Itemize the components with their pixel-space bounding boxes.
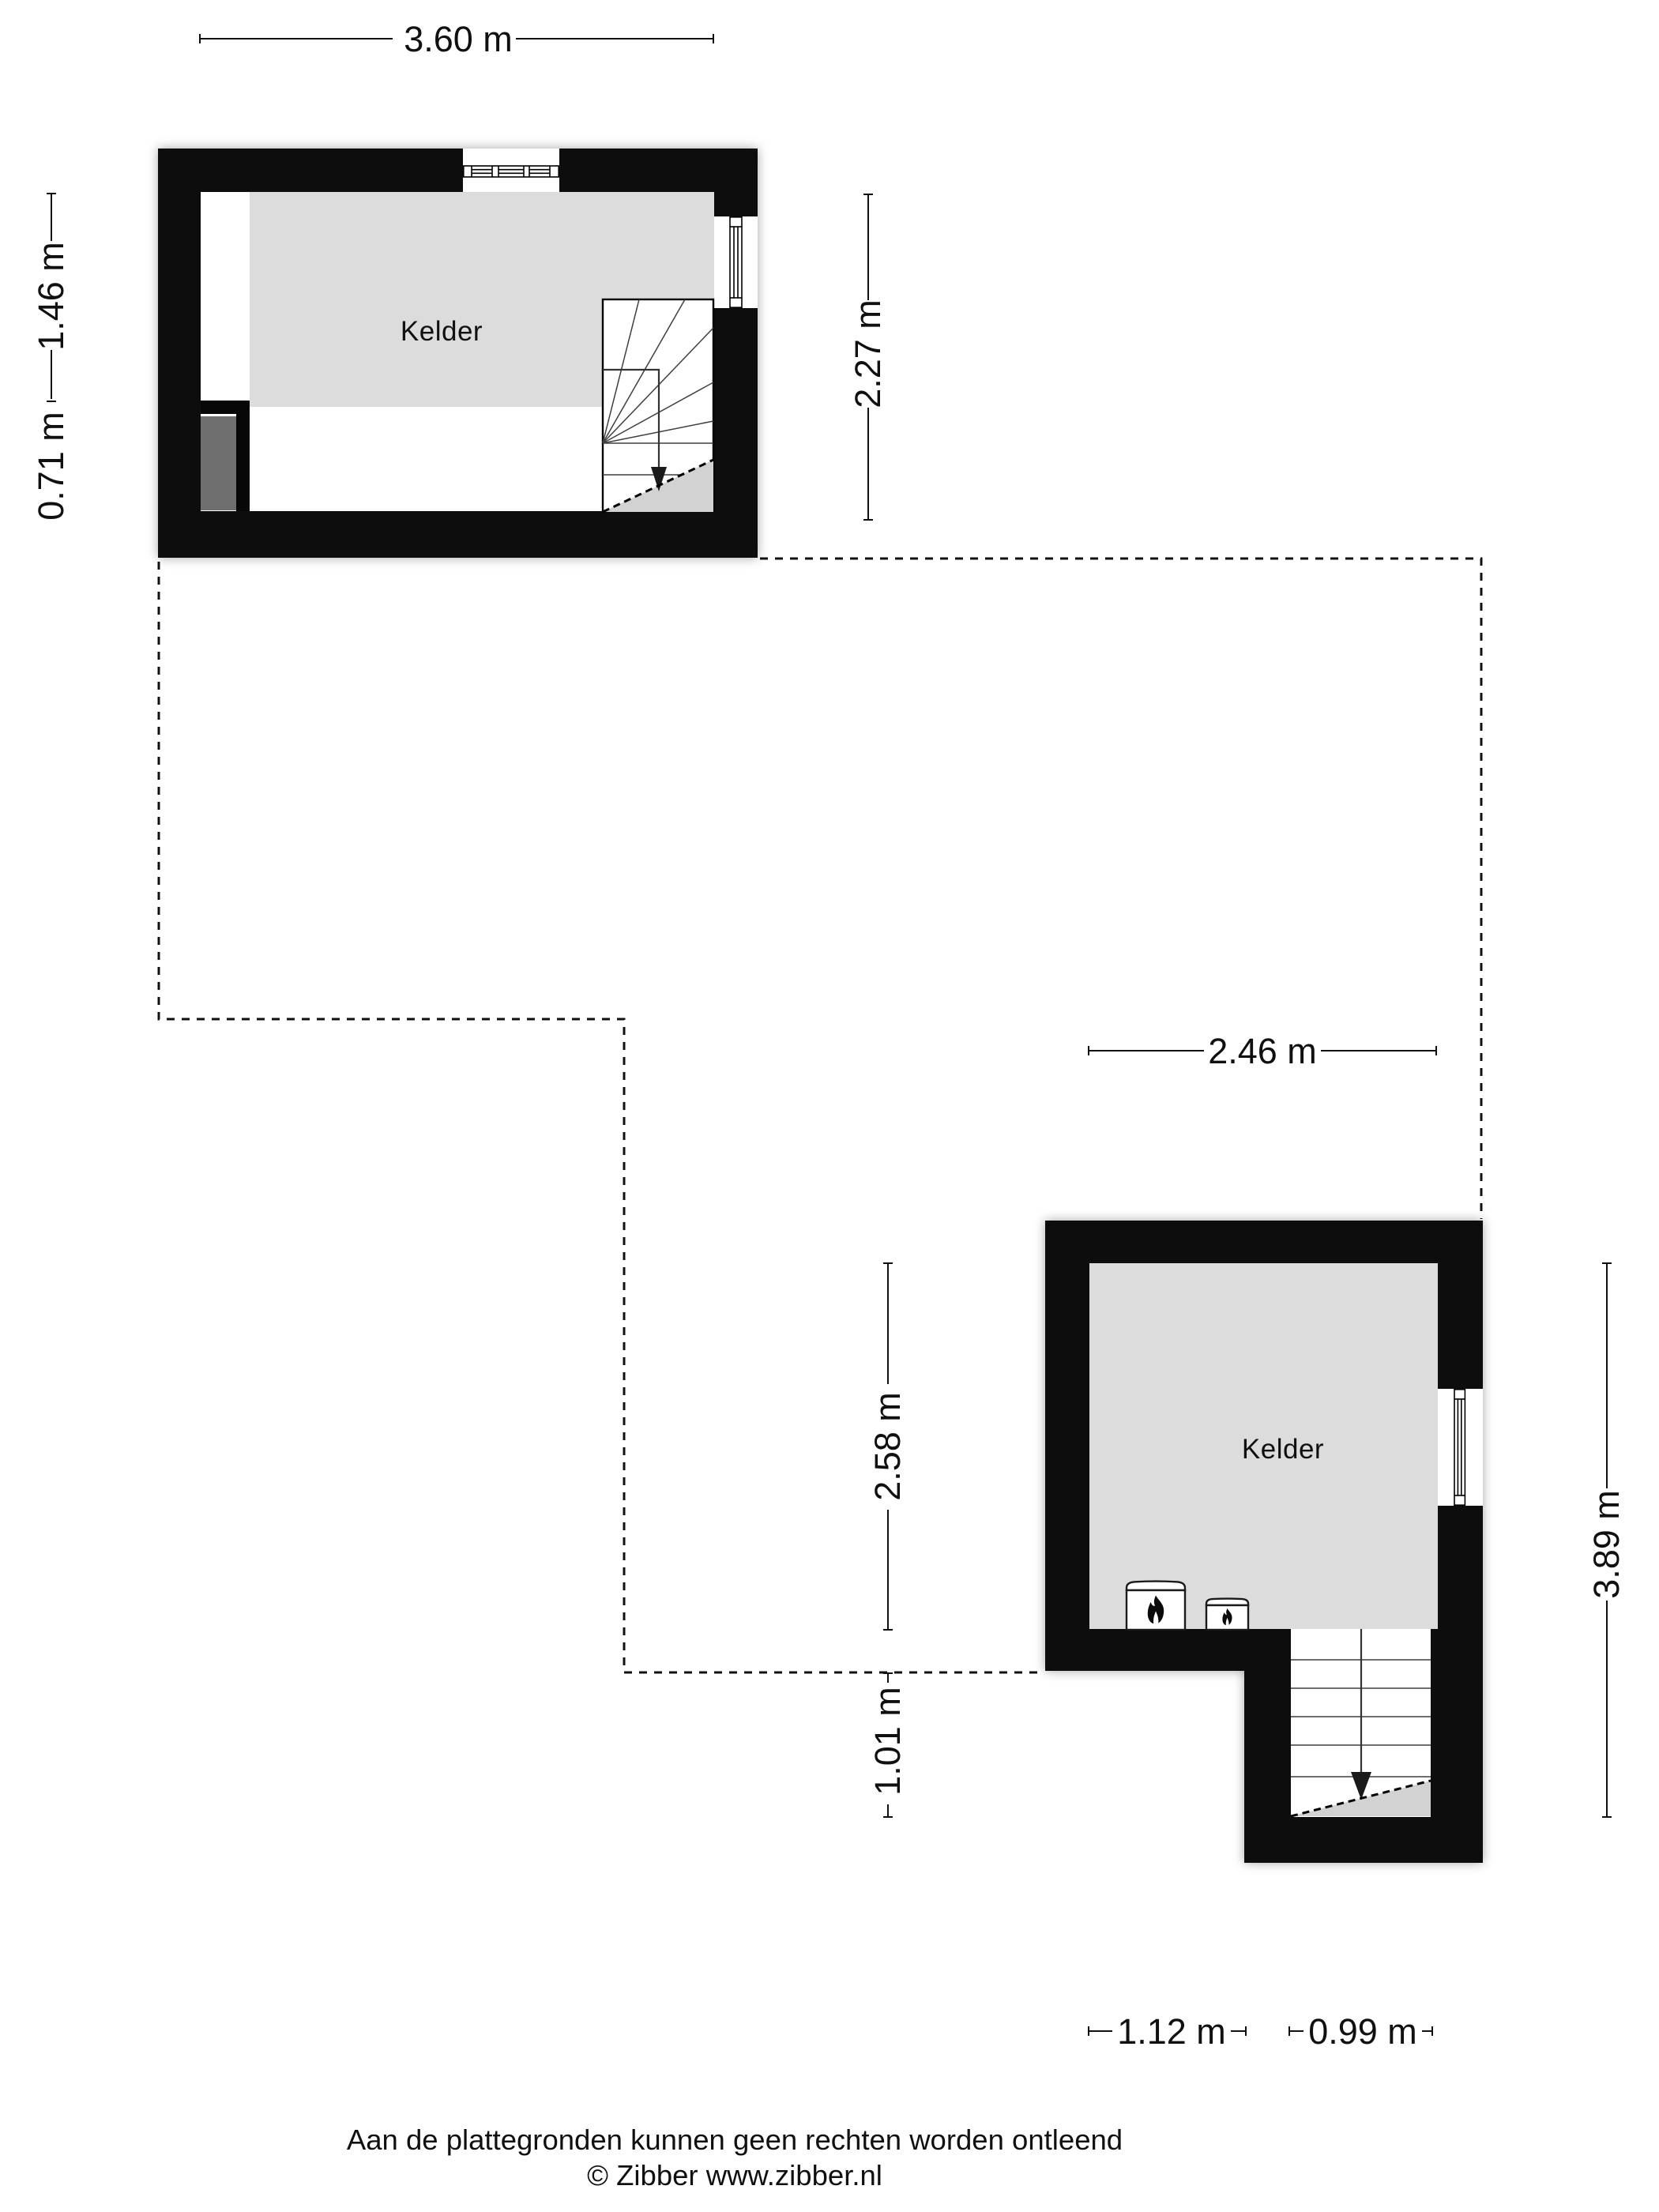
- svg-text:2.46 m: 2.46 m: [1208, 1031, 1317, 1071]
- svg-text:3.89 m: 3.89 m: [1586, 1490, 1627, 1599]
- svg-text:0.99 m: 0.99 m: [1308, 2011, 1417, 2052]
- svg-text:2.27 m: 2.27 m: [848, 299, 888, 408]
- svg-text:1.46 m: 1.46 m: [31, 242, 71, 351]
- svg-text:Kelder: Kelder: [401, 316, 483, 347]
- svg-text:Aan de plattegronden kunnen ge: Aan de plattegronden kunnen geen rechten…: [347, 2124, 1123, 2156]
- svg-text:Kelder: Kelder: [1242, 1434, 1324, 1465]
- svg-text:3.60 m: 3.60 m: [404, 19, 513, 59]
- svg-text:0.71 m: 0.71 m: [31, 412, 71, 521]
- svg-text:2.58 m: 2.58 m: [867, 1392, 908, 1501]
- svg-text:1.01 m: 1.01 m: [867, 1687, 908, 1796]
- svg-text:© Zibber www.zibber.nl: © Zibber www.zibber.nl: [587, 2159, 882, 2191]
- svg-text:1.12 m: 1.12 m: [1117, 2011, 1226, 2052]
